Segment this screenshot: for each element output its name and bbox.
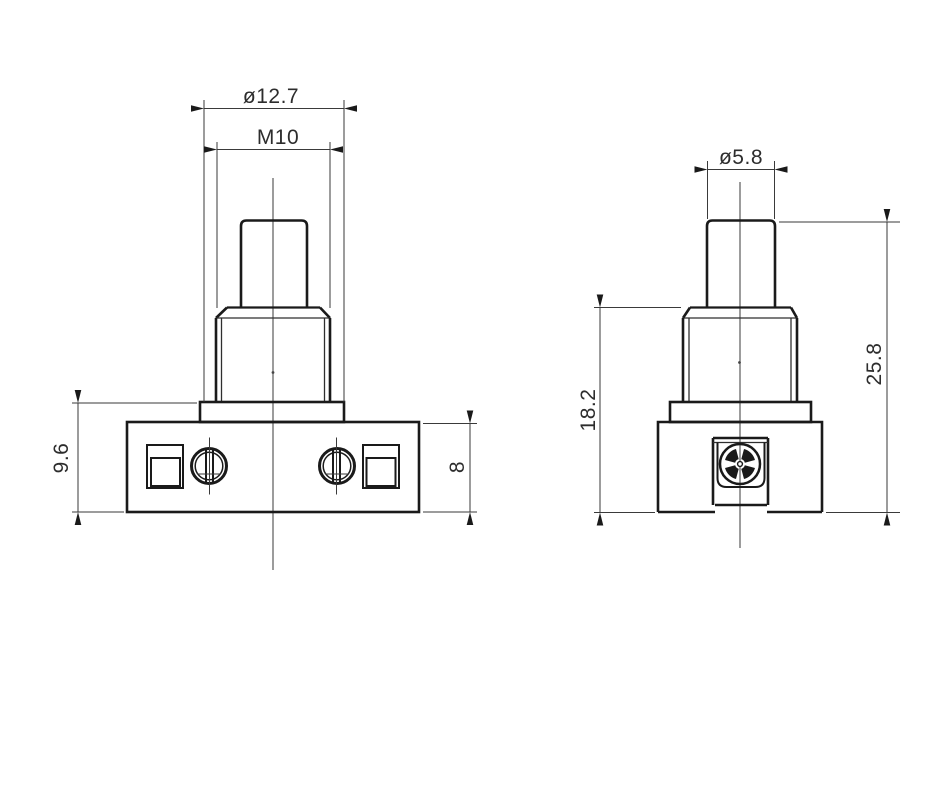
side-plunger-outline <box>707 221 775 308</box>
phillips-center-dot <box>738 462 743 467</box>
front-flange-collar <box>200 402 344 422</box>
front-terminal-window-left-inner <box>151 458 180 486</box>
phillips-recess-sector <box>741 465 755 479</box>
front-terminal-screw-left <box>192 438 227 495</box>
dim-label-flange-diameter: ø12.7 <box>243 85 299 108</box>
side-view-dimensions: ø5.8 18.2 25.8 <box>577 146 900 513</box>
dim-label-thread: M10 <box>257 126 299 149</box>
side-center-mark <box>738 361 741 364</box>
technical-drawing-page: ø12.7 M10 9.6 8 <box>0 0 928 794</box>
dim-label-flange-plus-body-height: 9.6 <box>50 443 73 474</box>
dimension-body-height: 8 <box>423 424 477 513</box>
front-terminal-window-right <box>363 445 399 488</box>
front-view <box>127 178 419 570</box>
dim-label-button-diameter: ø5.8 <box>719 146 763 169</box>
dim-label-body-height: 8 <box>446 461 469 473</box>
phillips-recess-sector <box>725 449 739 463</box>
front-terminal-window-right-inner <box>367 458 396 486</box>
front-terminal-screw-right <box>320 438 355 495</box>
drawing-canvas: ø12.7 M10 9.6 8 <box>0 0 928 794</box>
side-view <box>658 182 822 548</box>
front-view-dimensions: ø12.7 M10 9.6 8 <box>50 85 477 512</box>
side-bushing-chamfer-right <box>791 308 797 319</box>
dimension-bushing-base-height: 18.2 <box>577 308 681 513</box>
front-plunger-outline <box>241 221 307 308</box>
front-bushing-chamfer-right <box>320 308 330 319</box>
dimension-button-diameter: ø5.8 <box>708 146 775 219</box>
dim-label-bushing-base-height: 18.2 <box>577 389 600 432</box>
phillips-recess-sector <box>725 465 739 479</box>
front-terminal-window-left <box>147 445 183 488</box>
front-bushing-chamfer-left <box>216 308 227 319</box>
side-bushing-chamfer-left <box>683 308 690 319</box>
front-center-mark <box>272 371 275 374</box>
dim-label-overall-height: 25.8 <box>863 343 886 386</box>
phillips-recess-sector <box>741 449 755 463</box>
